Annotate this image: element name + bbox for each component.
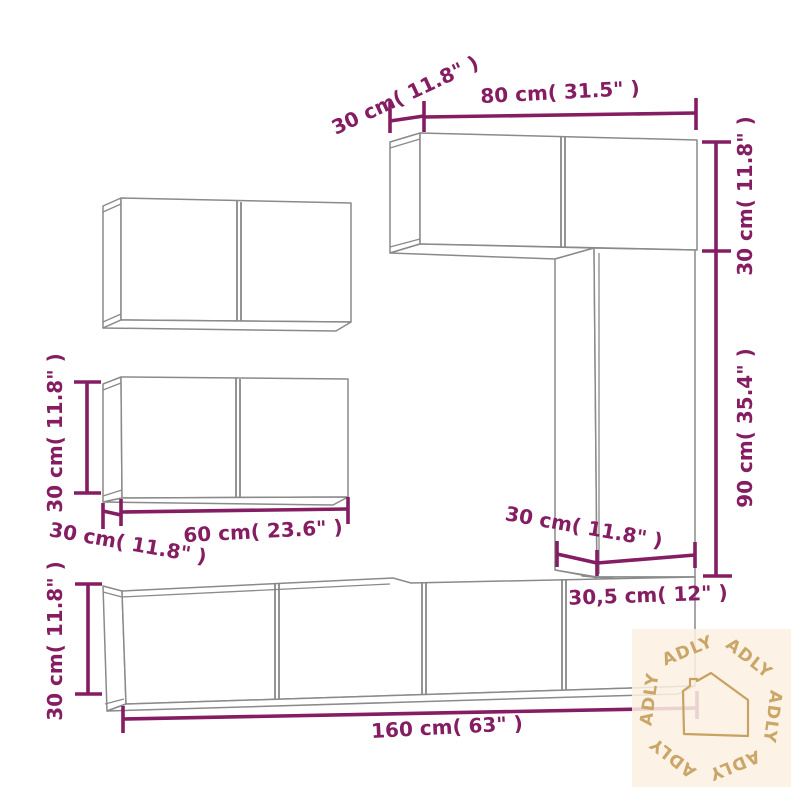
dim-depth-line	[103, 511, 121, 515]
dim-label-top-depth: 30 cm( 11.8" )	[328, 50, 483, 139]
dim-label-tall-width: 30,5 cm( 12" )	[568, 580, 728, 610]
cabinet-front-face	[121, 198, 351, 322]
dims-right-heights: 30 cm( 11.8" ) 90 cm( 35.4" )	[702, 116, 757, 576]
dim-label-mid-width: 60 cm( 23.6" )	[183, 515, 344, 547]
dim-label-stand-width: 160 cm( 63" )	[371, 711, 524, 743]
dim-label-top-width: 80 cm( 31.5" )	[480, 76, 641, 108]
cabinet-side-panel	[103, 377, 122, 502]
dim-label-top-height: 30 cm( 11.8" )	[733, 116, 757, 275]
cabinet-top-left-drawing	[103, 198, 351, 331]
cabinet-front-face	[121, 377, 348, 498]
dims-top-cabinet: 30 cm( 11.8" ) 80 cm( 31.5" )	[328, 50, 696, 139]
cabinet-bottom-strip	[103, 320, 351, 331]
cabinet-side-panel	[103, 198, 121, 328]
dim-label-stand-height: 30 cm( 11.8" )	[43, 561, 67, 720]
cabinet-bottom-strip	[103, 497, 348, 505]
cabinet-side-panel	[390, 133, 420, 253]
cabinet-mid-left-drawing	[103, 377, 348, 505]
dim-depth-line	[390, 116, 424, 121]
product-dimension-diagram: 30 cm( 11.8" ) 80 cm( 31.5" ) 30 cm( 11.…	[0, 0, 800, 800]
cabinet-front-face	[420, 133, 697, 250]
dim-label-tall-height: 90 cm( 35.4" )	[733, 348, 757, 507]
dim-width-line	[121, 509, 348, 512]
adly-watermark: ADLY ADLY ADLY ADLY ADLY ADLY	[632, 629, 791, 787]
dim-width-line	[424, 113, 696, 117]
diagram-canvas: 30 cm( 11.8" ) 80 cm( 31.5" ) 30 cm( 11.…	[0, 0, 800, 800]
dim-label-mid-height: 30 cm( 11.8" )	[43, 353, 67, 512]
